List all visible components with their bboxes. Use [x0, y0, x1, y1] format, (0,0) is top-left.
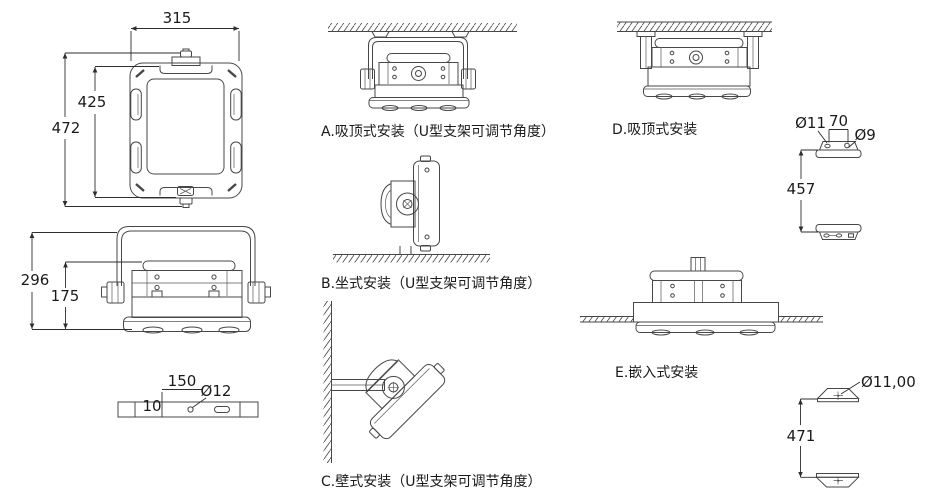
caption-mount-d: D.吸顶式安装 — [612, 122, 697, 138]
mount-slot — [215, 407, 230, 413]
dim-hole-label: Ø11,00 — [861, 373, 916, 391]
bracket-bottom-dimensions: Ø11,00 471 — [787, 373, 916, 477]
ceiling-hatch — [328, 23, 517, 32]
caption-mount-b: B.坐式安装（U型支架可调节角度） — [321, 276, 541, 292]
bracket-upper — [818, 389, 859, 402]
dim-total-height-label: 296 — [21, 271, 50, 289]
bracket-top-dimensions: Ø11 70 Ø9 457 — [787, 112, 876, 232]
dim-hole-diameter-label: Ø12 — [201, 382, 232, 400]
mount-b: B.坐式安装（U型支架可调节角度） — [321, 156, 541, 292]
installation-drawing-page: 315 425 472 — [0, 0, 925, 502]
hole-center — [837, 480, 839, 482]
dim-distance-label: 471 — [787, 427, 816, 445]
bottom-view: 150 10 Ø12 — [118, 372, 258, 417]
fixture-side — [124, 261, 251, 333]
mount-hole — [188, 407, 193, 412]
front-view-dimensions: 315 425 472 — [52, 9, 239, 207]
pole — [400, 246, 411, 255]
caption-mount-c: C.壁式安装（U型支架可调节角度） — [321, 474, 541, 490]
hole-11 — [825, 144, 830, 147]
dim-edge-offset-label: 10 — [142, 397, 161, 415]
side-view-dimensions: 296 175 — [21, 233, 142, 330]
mount-a: A.吸顶式安装（U型支架可调节角度） — [321, 23, 555, 140]
ceiling-hatch — [617, 22, 772, 32]
lens-ring — [387, 54, 450, 63]
bracket-detail-bottom: Ø11,00 471 — [787, 373, 916, 487]
fixture — [369, 54, 469, 111]
bracket-lower — [817, 474, 859, 488]
dim-width-label: 315 — [163, 9, 192, 27]
dim-inner-height-label: 425 — [78, 93, 107, 111]
heatsink-fins — [634, 303, 779, 323]
heatsink-fins — [132, 297, 242, 318]
dim-hole-right-label: Ø9 — [855, 126, 876, 144]
mount-feet — [372, 32, 469, 38]
fixture-profile — [381, 156, 440, 251]
fixture — [644, 39, 751, 100]
dim-outer-height-label: 472 — [52, 119, 81, 137]
u-bracket — [102, 227, 271, 304]
dim-body-height-label: 175 — [51, 287, 80, 305]
heatsink-fins — [648, 67, 750, 86]
fixture-tilted — [341, 335, 451, 445]
hole-center — [837, 395, 839, 397]
caption-mount-e: E.嵌入式安装 — [615, 365, 698, 381]
dim-hole-left-label: Ø11 — [795, 114, 826, 132]
bracket-detail-top: Ø11 70 Ø9 457 — [787, 112, 876, 240]
heatsink-fins — [375, 85, 463, 98]
lens-dome — [360, 354, 398, 392]
ground-hatch — [333, 255, 490, 263]
dim-hole-spacing-label: 150 — [168, 372, 197, 390]
front-view: 315 425 472 — [52, 9, 242, 208]
caption-mount-a: A.吸顶式安装（U型支架可调节角度） — [321, 124, 555, 140]
bottom-view-dimensions: 150 10 Ø12 — [142, 372, 231, 417]
mount-c: C.壁式安装（U型支架可调节角度） — [321, 301, 541, 490]
side-view: 296 175 — [21, 227, 271, 334]
bottom-connector — [160, 187, 212, 208]
fixture — [634, 258, 779, 336]
panel-hatch — [580, 317, 823, 323]
dim-distance-label: 457 — [787, 180, 816, 198]
lens-ring — [143, 261, 235, 271]
lens-ring — [655, 39, 743, 48]
lens-dome — [381, 184, 392, 225]
mount-d: D.吸顶式安装 — [612, 22, 772, 138]
bracket-lower — [816, 225, 861, 240]
dim-hole-spacing-label: 70 — [829, 112, 848, 130]
wall-hatch — [324, 301, 332, 463]
mount-e: E.嵌入式安装 — [580, 258, 823, 382]
technical-drawing: 315 425 472 — [0, 0, 925, 502]
cable-gland — [691, 258, 705, 272]
lens-ring — [650, 271, 743, 281]
front-view-body — [130, 49, 242, 208]
